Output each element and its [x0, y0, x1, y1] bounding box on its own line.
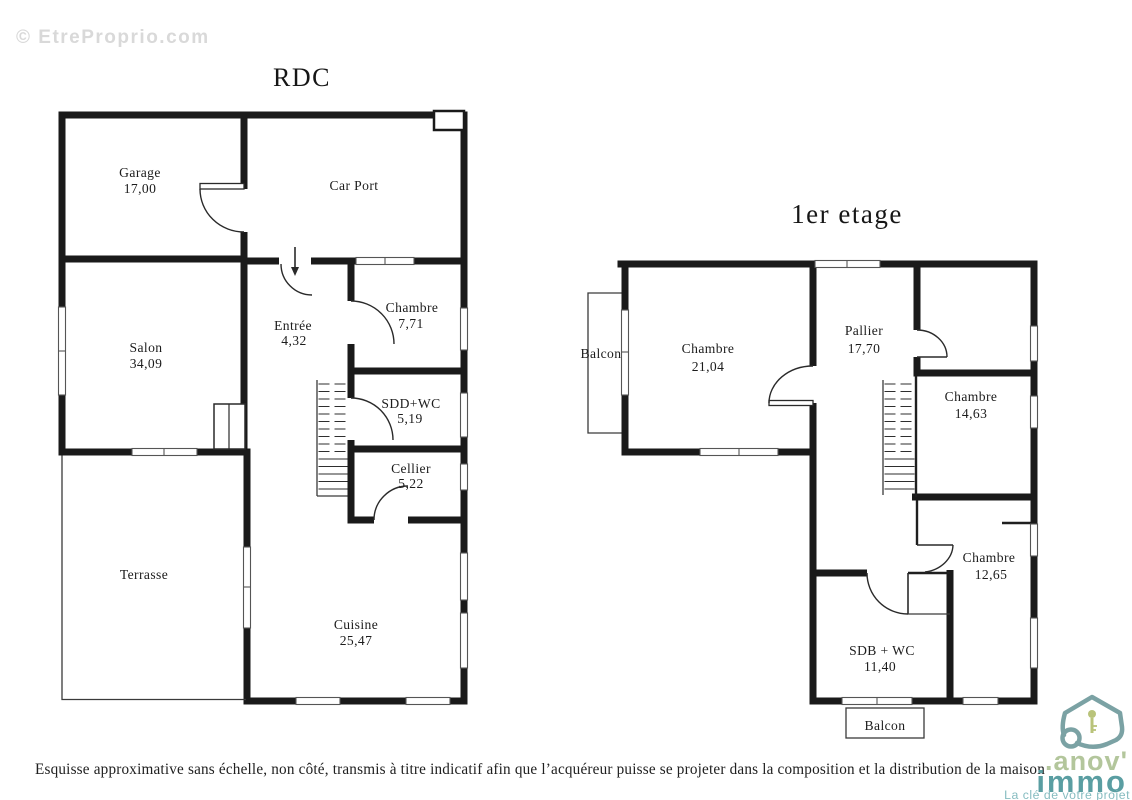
cellier-label: Cellier — [391, 461, 431, 476]
entry-arrow-head — [291, 267, 299, 276]
chambre21-area: 21,04 — [692, 359, 725, 374]
chambre-rdc-area: 7,71 — [398, 316, 423, 331]
garage-door-leaf — [200, 184, 244, 190]
cuisine-area: 25,47 — [340, 633, 373, 648]
disclaimer-text: Esquisse approximative sans échelle, non… — [35, 761, 1045, 778]
chambre12-door-arc — [925, 545, 953, 572]
cuisine-label: Cuisine — [334, 617, 378, 632]
carport-pillar — [434, 111, 464, 130]
floorplan-drawing: © EtreProprio.com RDC — [0, 0, 1132, 800]
house-icon — [1063, 697, 1123, 747]
chambre14-area: 14,63 — [955, 406, 988, 421]
logo-tagline: La clé de votre projet — [1004, 788, 1130, 800]
balcon-left-outline — [588, 293, 622, 433]
pallier-area: 17,70 — [848, 341, 881, 356]
garage-label: Garage — [119, 165, 161, 180]
balcon-bottom-label: Balcon — [865, 718, 906, 733]
etage-title: 1er etage — [791, 199, 903, 229]
chambre21-label: Chambre — [682, 341, 735, 356]
garage-area: 17,00 — [124, 181, 157, 196]
watermark-text: © EtreProprio.com — [16, 27, 210, 48]
salon-chimney — [214, 404, 245, 449]
chambre21-door-arc — [769, 366, 813, 403]
rdc-doors — [200, 184, 408, 521]
cellier-area: 5,22 — [398, 476, 423, 491]
garage-door-arc — [200, 189, 244, 232]
etage-windows — [622, 261, 1038, 705]
rdc-stairs — [317, 380, 348, 496]
chambre14-label: Chambre — [945, 389, 998, 404]
salon-area: 34,09 — [130, 356, 163, 371]
terrasse-label: Terrasse — [120, 567, 168, 582]
carport-label: Car Port — [330, 178, 379, 193]
sdb-area: 11,40 — [864, 659, 896, 674]
cellier-door-arc — [374, 486, 408, 520]
agency-logo: .anov' immo La clé de votre projet — [1004, 697, 1130, 800]
etage-walls — [618, 261, 1038, 705]
chambre21-door-leaf — [769, 401, 813, 406]
entree-label: Entrée — [274, 318, 312, 333]
rdc-title: RDC — [273, 63, 331, 92]
chambre-rdc-label: Chambre — [386, 300, 439, 315]
etage-stairs — [883, 380, 915, 495]
etage-plan: 1er etage — [581, 199, 1038, 738]
chambre12-area: 12,65 — [975, 567, 1008, 582]
sdd-label: SDD+WC — [381, 396, 440, 411]
entree-area: 4,32 — [281, 333, 306, 348]
salon-label: Salon — [130, 340, 163, 355]
chambre12-label: Chambre — [963, 550, 1016, 565]
pallier-label: Pallier — [845, 323, 883, 338]
sdb-door-arc — [867, 573, 908, 614]
chambre14-door-arc — [917, 330, 947, 357]
rdc-labels: Garage 17,00 Car Port Salon 34,09 Entrée… — [119, 165, 440, 648]
sdd-area: 5,19 — [397, 411, 422, 426]
rdc-plan: RDC — [59, 63, 468, 705]
floorplan-page: © EtreProprio.com RDC — [0, 0, 1132, 800]
balcon-left-label: Balcon — [581, 346, 622, 361]
sdb-label: SDB + WC — [849, 643, 915, 658]
